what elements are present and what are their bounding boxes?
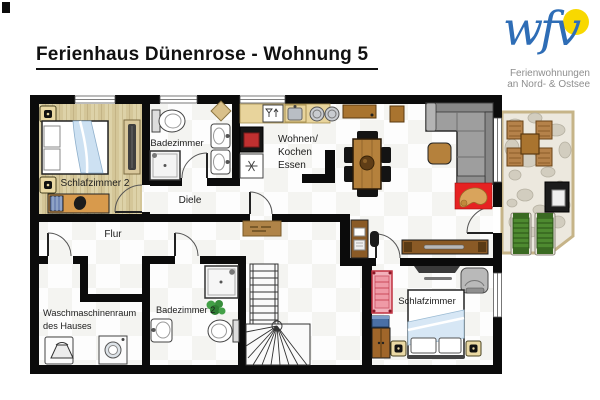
wall-segment [73,256,80,264]
room-label-badezimmer: Badezimmer [150,138,203,149]
wall-segment [272,214,340,222]
wall-segment [493,233,502,273]
scan-artifact [2,2,10,13]
floor-plan-page: Ferienhaus Dünenrose - Wohnung 5 wfv Fer… [0,0,600,400]
wall-segment [39,256,48,264]
window [494,273,502,317]
shower [205,266,238,298]
window [494,118,502,182]
wall-segment [39,214,150,222]
room-label-badezimmer2: Badezimmer 2 [156,305,215,315]
oven [240,127,263,152]
room-label-wohnen-line3: Essen [278,160,306,171]
sun-lounger-left [511,213,531,255]
wall-segment [302,174,335,183]
wall-segment [493,182,502,207]
wall-segment [197,95,240,104]
armchair [461,268,488,293]
table-centerpiece [360,156,374,170]
wall-segment [493,317,502,374]
nightstand [466,341,481,356]
window [240,96,285,103]
wall-segment [232,104,240,186]
wall-segment [142,104,150,185]
room-label-wohnen-line2: Kochen [278,147,312,158]
radiator [124,120,140,174]
freezer [240,154,263,178]
wardrobe [372,328,390,358]
terrace-table [521,134,539,154]
sink [151,319,172,342]
wall-segment [362,266,372,365]
toilet [208,320,239,342]
nightstand [40,177,56,193]
wall-segment [80,294,150,302]
shower [150,151,180,180]
wall-segment [200,256,240,264]
dishwasher [263,105,283,122]
laundry-basket [45,337,73,364]
doormat [243,221,281,236]
dresser-desk [48,194,109,213]
wall-segment [150,256,175,264]
room-label-diele: Diele [179,195,202,206]
sideboard [402,240,488,254]
window [75,96,115,103]
wall-segment [493,95,502,118]
cabinet-small [390,106,404,122]
wall-segment [238,256,246,365]
floor-plan-drawing: Schlafzimmer 2 Badezimmer Wohnen/ Kochen… [0,0,600,400]
room-label-waschraum-line1: Waschmaschinenraum [43,308,136,318]
coffee-table [428,143,451,164]
wall-segment [30,365,502,374]
sun-lounger-right [535,213,555,255]
nightstand [391,341,406,356]
toilet [152,110,185,132]
grill [545,182,569,212]
nightstand [40,106,56,122]
office-chair [370,231,379,247]
double-bed [42,121,108,174]
sink [211,150,230,174]
cabinet-blue [372,316,389,327]
wall-segment [142,256,150,365]
wall-segment [150,214,250,222]
washing-machine [99,336,127,364]
baby-crib [372,271,392,313]
wall-segment [400,258,493,266]
room-label-schlafzimmer2: Schlafzimmer 2 [61,178,130,189]
dog-rug [455,183,492,209]
kitchen-sink [285,105,306,122]
window [160,96,197,103]
wall-segment [340,258,376,266]
room-label-waschraum-line2: des Hauses [43,321,92,331]
room-label-schlafzimmer: Schlafzimmer [398,296,456,307]
room-label-flur: Flur [104,229,122,240]
wall-segment [30,95,39,374]
logo-brand: wfv [503,6,578,53]
sink [211,124,230,148]
room-label-wohnen-line1: Wohnen/ [278,134,318,145]
wall-segment [115,95,160,104]
terrace [502,112,573,255]
